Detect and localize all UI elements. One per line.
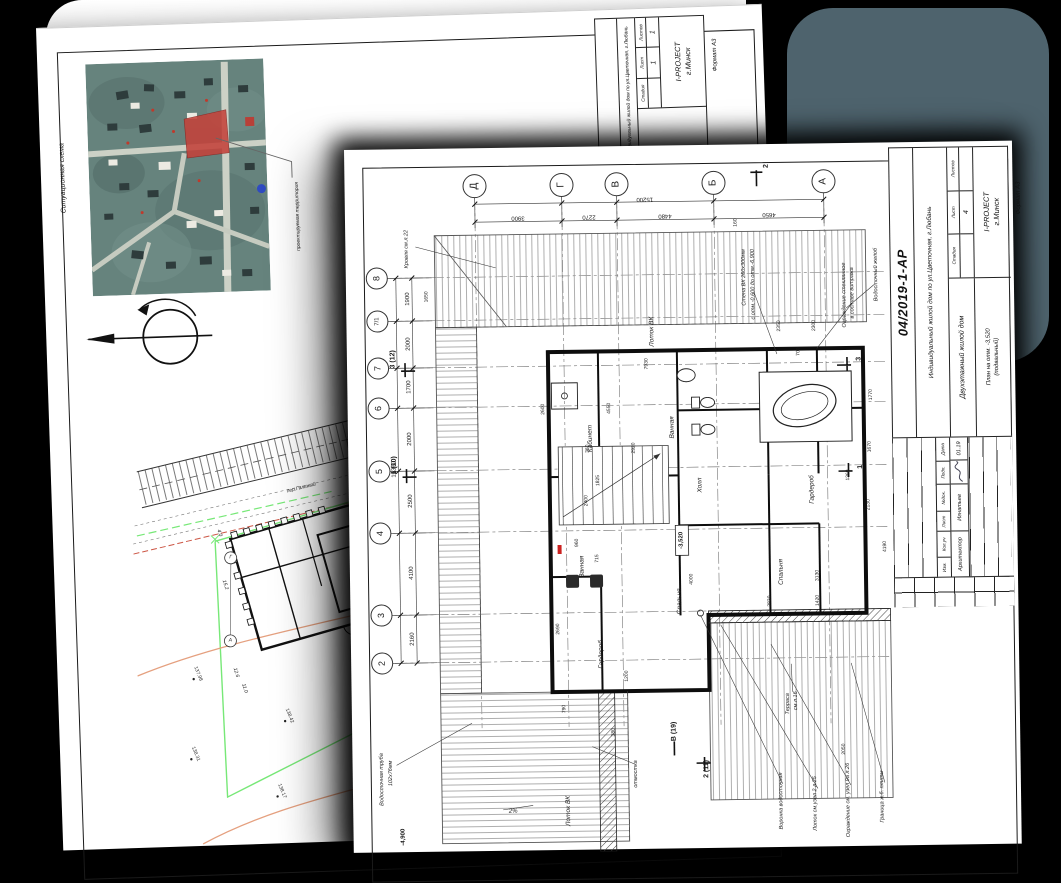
sheets-header: Листов	[947, 147, 959, 190]
dimension-label: 2500	[408, 494, 414, 507]
spot-elevation: 138.31	[190, 746, 200, 762]
site-label: 15.2	[221, 580, 229, 591]
axis-label: Б	[708, 179, 718, 186]
dimension-label: 2690	[556, 623, 561, 634]
format-label: Формат А3	[712, 38, 719, 71]
date-value: 01.19	[950, 437, 967, 459]
callout-label: см.л.16	[794, 691, 800, 710]
dimension-label: 1700	[406, 380, 412, 393]
room-label: Гардероб	[809, 475, 816, 504]
dimension-label: 4480	[658, 212, 671, 218]
organization: I-PROJECT г.Минск	[973, 147, 1011, 277]
callout-label: Кровля см.л.22	[404, 230, 410, 268]
room-label: Ванная	[670, 416, 677, 438]
sheets-header: Листов	[635, 18, 646, 48]
site-label: 11.0	[240, 683, 248, 693]
axis-label: 2	[378, 661, 387, 666]
callout-label: отмостка	[634, 760, 640, 787]
axis-label: Д	[469, 183, 479, 190]
site-label: 4.0	[215, 529, 222, 537]
dimension-label: 1200	[625, 670, 630, 681]
callout-label: Водосточный желоб	[874, 248, 880, 301]
dimension-label: 2050	[842, 743, 847, 754]
dimension-label: 700	[796, 347, 801, 355]
spot-elevation: 138.42	[284, 708, 294, 724]
dimension-label: 3900	[511, 214, 524, 220]
dimension-label: 2000	[407, 432, 413, 445]
axis-label: 5	[375, 469, 384, 474]
callout-label: Граница ж.б. плиты	[880, 770, 886, 822]
room-label: Лоток ВК	[649, 317, 656, 347]
dimension-label: 160	[733, 218, 738, 226]
dimension-label: 715	[595, 554, 600, 562]
site-label: А	[229, 638, 233, 643]
section-marker: 2 (11)	[703, 760, 710, 778]
site-label: пер.Гальный	[286, 482, 316, 494]
org-city: г.Минск	[683, 47, 694, 75]
site-label: 12.6	[232, 667, 240, 678]
axis-label: Г	[556, 182, 566, 188]
drawing-name: План на отм. -3,520 (подвальный)	[975, 277, 1013, 436]
spot-elevation: 138.17	[276, 783, 286, 799]
callout-label: Стена ВК 260х300мм	[742, 249, 748, 305]
sheet-header: Лист	[636, 47, 647, 78]
sheet-number: 4	[960, 190, 974, 234]
dimension-label: 2000	[406, 337, 412, 350]
dimension-label: 7930	[644, 358, 649, 369]
map-caption: Ситуационная схема	[58, 143, 67, 214]
stage-header: Стадия	[948, 233, 960, 277]
sheet-header: Лист	[948, 190, 960, 234]
axis-label: 3	[377, 613, 386, 618]
axis-label: 4	[376, 531, 385, 536]
page: { "meta": {"slate_color":"#4e636d","gree…	[0, 0, 1061, 855]
format-label: Формат А3	[1016, 182, 1022, 215]
room-label: Спальня	[779, 559, 786, 585]
stage-header: Стадия	[637, 77, 648, 108]
dimension-label: 1650	[424, 291, 429, 302]
architect-row: Архитектор Игнатьев 01.19	[950, 437, 970, 576]
axis-label: 7	[374, 366, 383, 371]
dimension-label: 4000	[689, 574, 694, 585]
callout-label: в составе витража	[850, 267, 856, 318]
callout-label: Ограждение стеклянное	[842, 263, 848, 328]
sheets-total: 1	[646, 17, 659, 47]
dimension-label: 2830	[768, 595, 773, 606]
dimension-label: 2160	[410, 632, 416, 645]
dimension-label: 1420	[816, 595, 821, 606]
callout-label: 102х76мм	[389, 761, 395, 787]
spot-elevation: 137.98	[192, 666, 202, 682]
dimension-label: 790	[562, 705, 567, 713]
callout-label: с отм.-0,600 до отм.-6,900	[751, 249, 757, 319]
dimension-label: 2400	[584, 495, 589, 506]
building-name: Двухэтажный жилой дом	[949, 278, 977, 437]
site-label: Г	[229, 555, 232, 560]
map-caption: проектируемая территория	[295, 182, 302, 251]
object-name: Индивидуальный жилой дом по ул.Цветочная…	[913, 148, 951, 437]
dimension-label: 4190	[883, 541, 888, 552]
room-label: Гардероб	[599, 640, 606, 669]
dimension-label: 2130	[866, 499, 871, 510]
room-label: Холл	[697, 478, 704, 493]
dimension-label: 380	[612, 728, 617, 736]
section-marker: 1	[857, 465, 864, 469]
dimension-label: 960	[575, 539, 580, 547]
callout-label: Лоток см.узел 2 л.25	[813, 776, 819, 831]
sheet-floor-plan: ДГВБА87/17654321520039002270448046501636…	[344, 141, 1022, 853]
elevation-marker: -3,520	[678, 532, 684, 549]
dimension-label: 2600	[541, 404, 546, 415]
dimension-label: 3130	[815, 570, 820, 581]
room-label: Кабинет	[588, 425, 595, 452]
axis-label: 6	[374, 406, 383, 411]
dimension-label: 4100	[409, 566, 415, 579]
signature	[950, 459, 967, 483]
callout-label: Водосточная труба	[380, 753, 386, 806]
axis-label: 8	[372, 276, 381, 281]
sheet-number: 1	[647, 47, 660, 78]
axis-label: 7/1	[374, 317, 380, 325]
room-label: Ванная	[579, 556, 586, 578]
section-marker: 3	[855, 357, 862, 361]
role-label: Архитектор	[951, 531, 969, 577]
callout-label: 2%	[509, 809, 518, 815]
axis-label: А	[818, 178, 828, 185]
dimension-label: 15200	[636, 196, 653, 202]
callout-label: Терраса	[786, 693, 792, 714]
dimension-label: 1825	[596, 475, 601, 486]
dimension-label: 1670	[868, 441, 873, 452]
dimension-label: 1900	[405, 292, 411, 305]
dimension-label: 2300	[812, 320, 817, 331]
dimension-label: 1770	[869, 389, 874, 400]
elevation-marker: -4,900	[400, 829, 406, 846]
section-marker: 3 (12)	[389, 350, 396, 368]
title-block-plan-sheet: Изм. Кол.уч Лист №док. Подп. Дата Архите…	[888, 146, 1014, 608]
room-label: Спальня	[677, 588, 684, 614]
section-marker: 2	[763, 164, 770, 168]
callout-label: Ограждение см. узел 9а л.26	[846, 763, 853, 837]
dimension-label: 2270	[582, 213, 595, 219]
dimension-label: 2350	[777, 320, 782, 331]
dimension-label: 4650	[762, 211, 775, 217]
callout-label: Воронка водосточная	[779, 772, 785, 829]
section-marker: 1 (10)	[391, 456, 398, 474]
dimension-label: 1360	[846, 469, 851, 480]
dimension-label: 2920	[632, 442, 637, 453]
room-label: Лоток ВК	[566, 796, 573, 826]
dimension-label: 4550	[607, 403, 612, 414]
section-marker: В (19)	[671, 722, 678, 742]
axis-label: В	[611, 181, 621, 188]
architect-name: Игнатьев	[951, 483, 969, 531]
